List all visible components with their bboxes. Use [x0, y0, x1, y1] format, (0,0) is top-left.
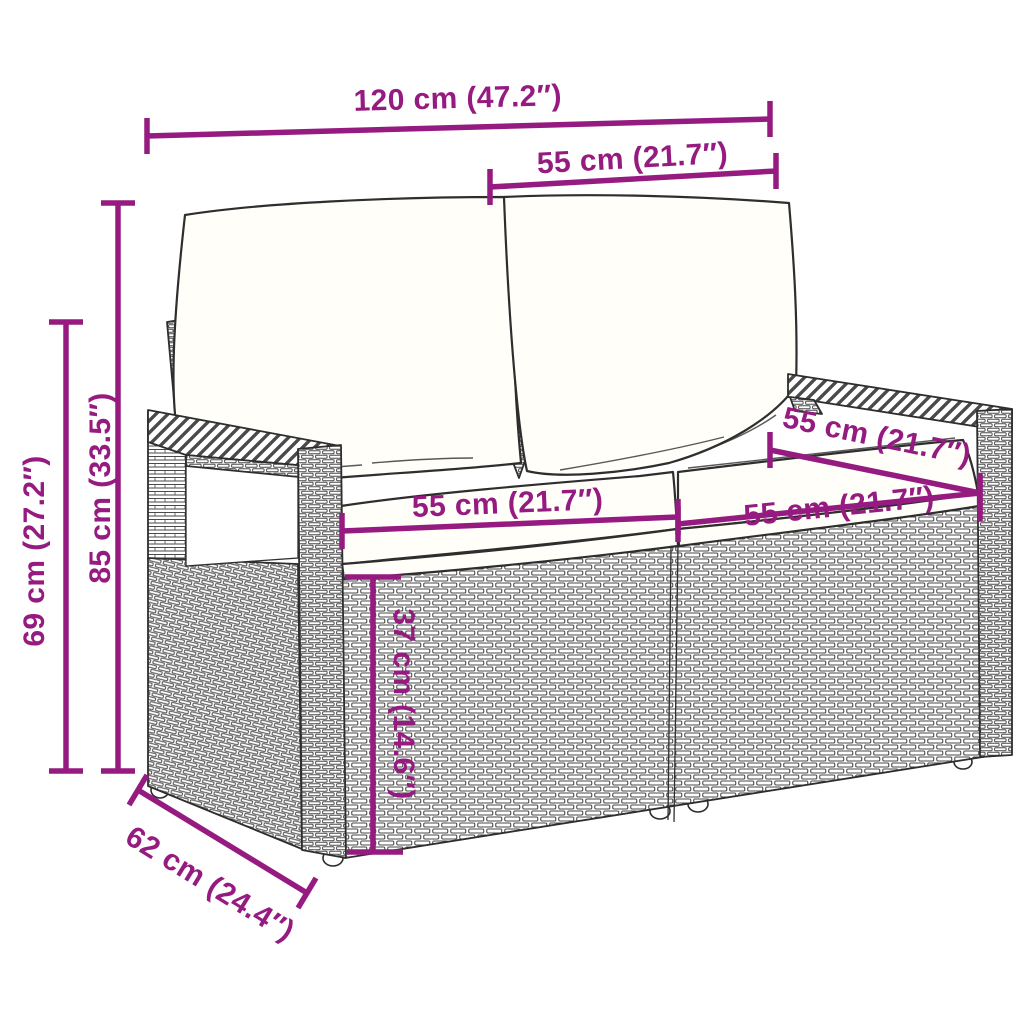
- arm-right-post: [977, 409, 1012, 757]
- dim-seat-height-label: 37 cm (14.6″): [387, 608, 420, 799]
- loveseat-dimension-drawing: 120 cm (47.2″) 55 cm (21.7″) 85 cm (33.5…: [0, 0, 1024, 1024]
- base-left-side-face: [148, 558, 302, 849]
- armrest-opening: [186, 463, 298, 566]
- arm-front-post: [298, 445, 346, 858]
- dim-armrest-height: 69 cm (27.2″): [18, 322, 83, 771]
- dimension-diagram: 120 cm (47.2″) 55 cm (21.7″) 85 cm (33.5…: [0, 0, 1024, 1024]
- sofa-illustration: [148, 195, 1012, 866]
- dim-total-height: 85 cm (33.5″): [84, 203, 135, 771]
- dim-total-depth-label: 62 cm (24.4″): [120, 820, 300, 948]
- dim-total-height-label: 85 cm (33.5″): [84, 392, 117, 583]
- back-cushion-right: [504, 195, 797, 474]
- left-armrest: [148, 410, 346, 858]
- dim-armrest-height-label: 69 cm (27.2″): [18, 455, 51, 646]
- dimension-line: [49, 322, 83, 771]
- dim-total-width-label: 120 cm (47.2″): [353, 79, 562, 118]
